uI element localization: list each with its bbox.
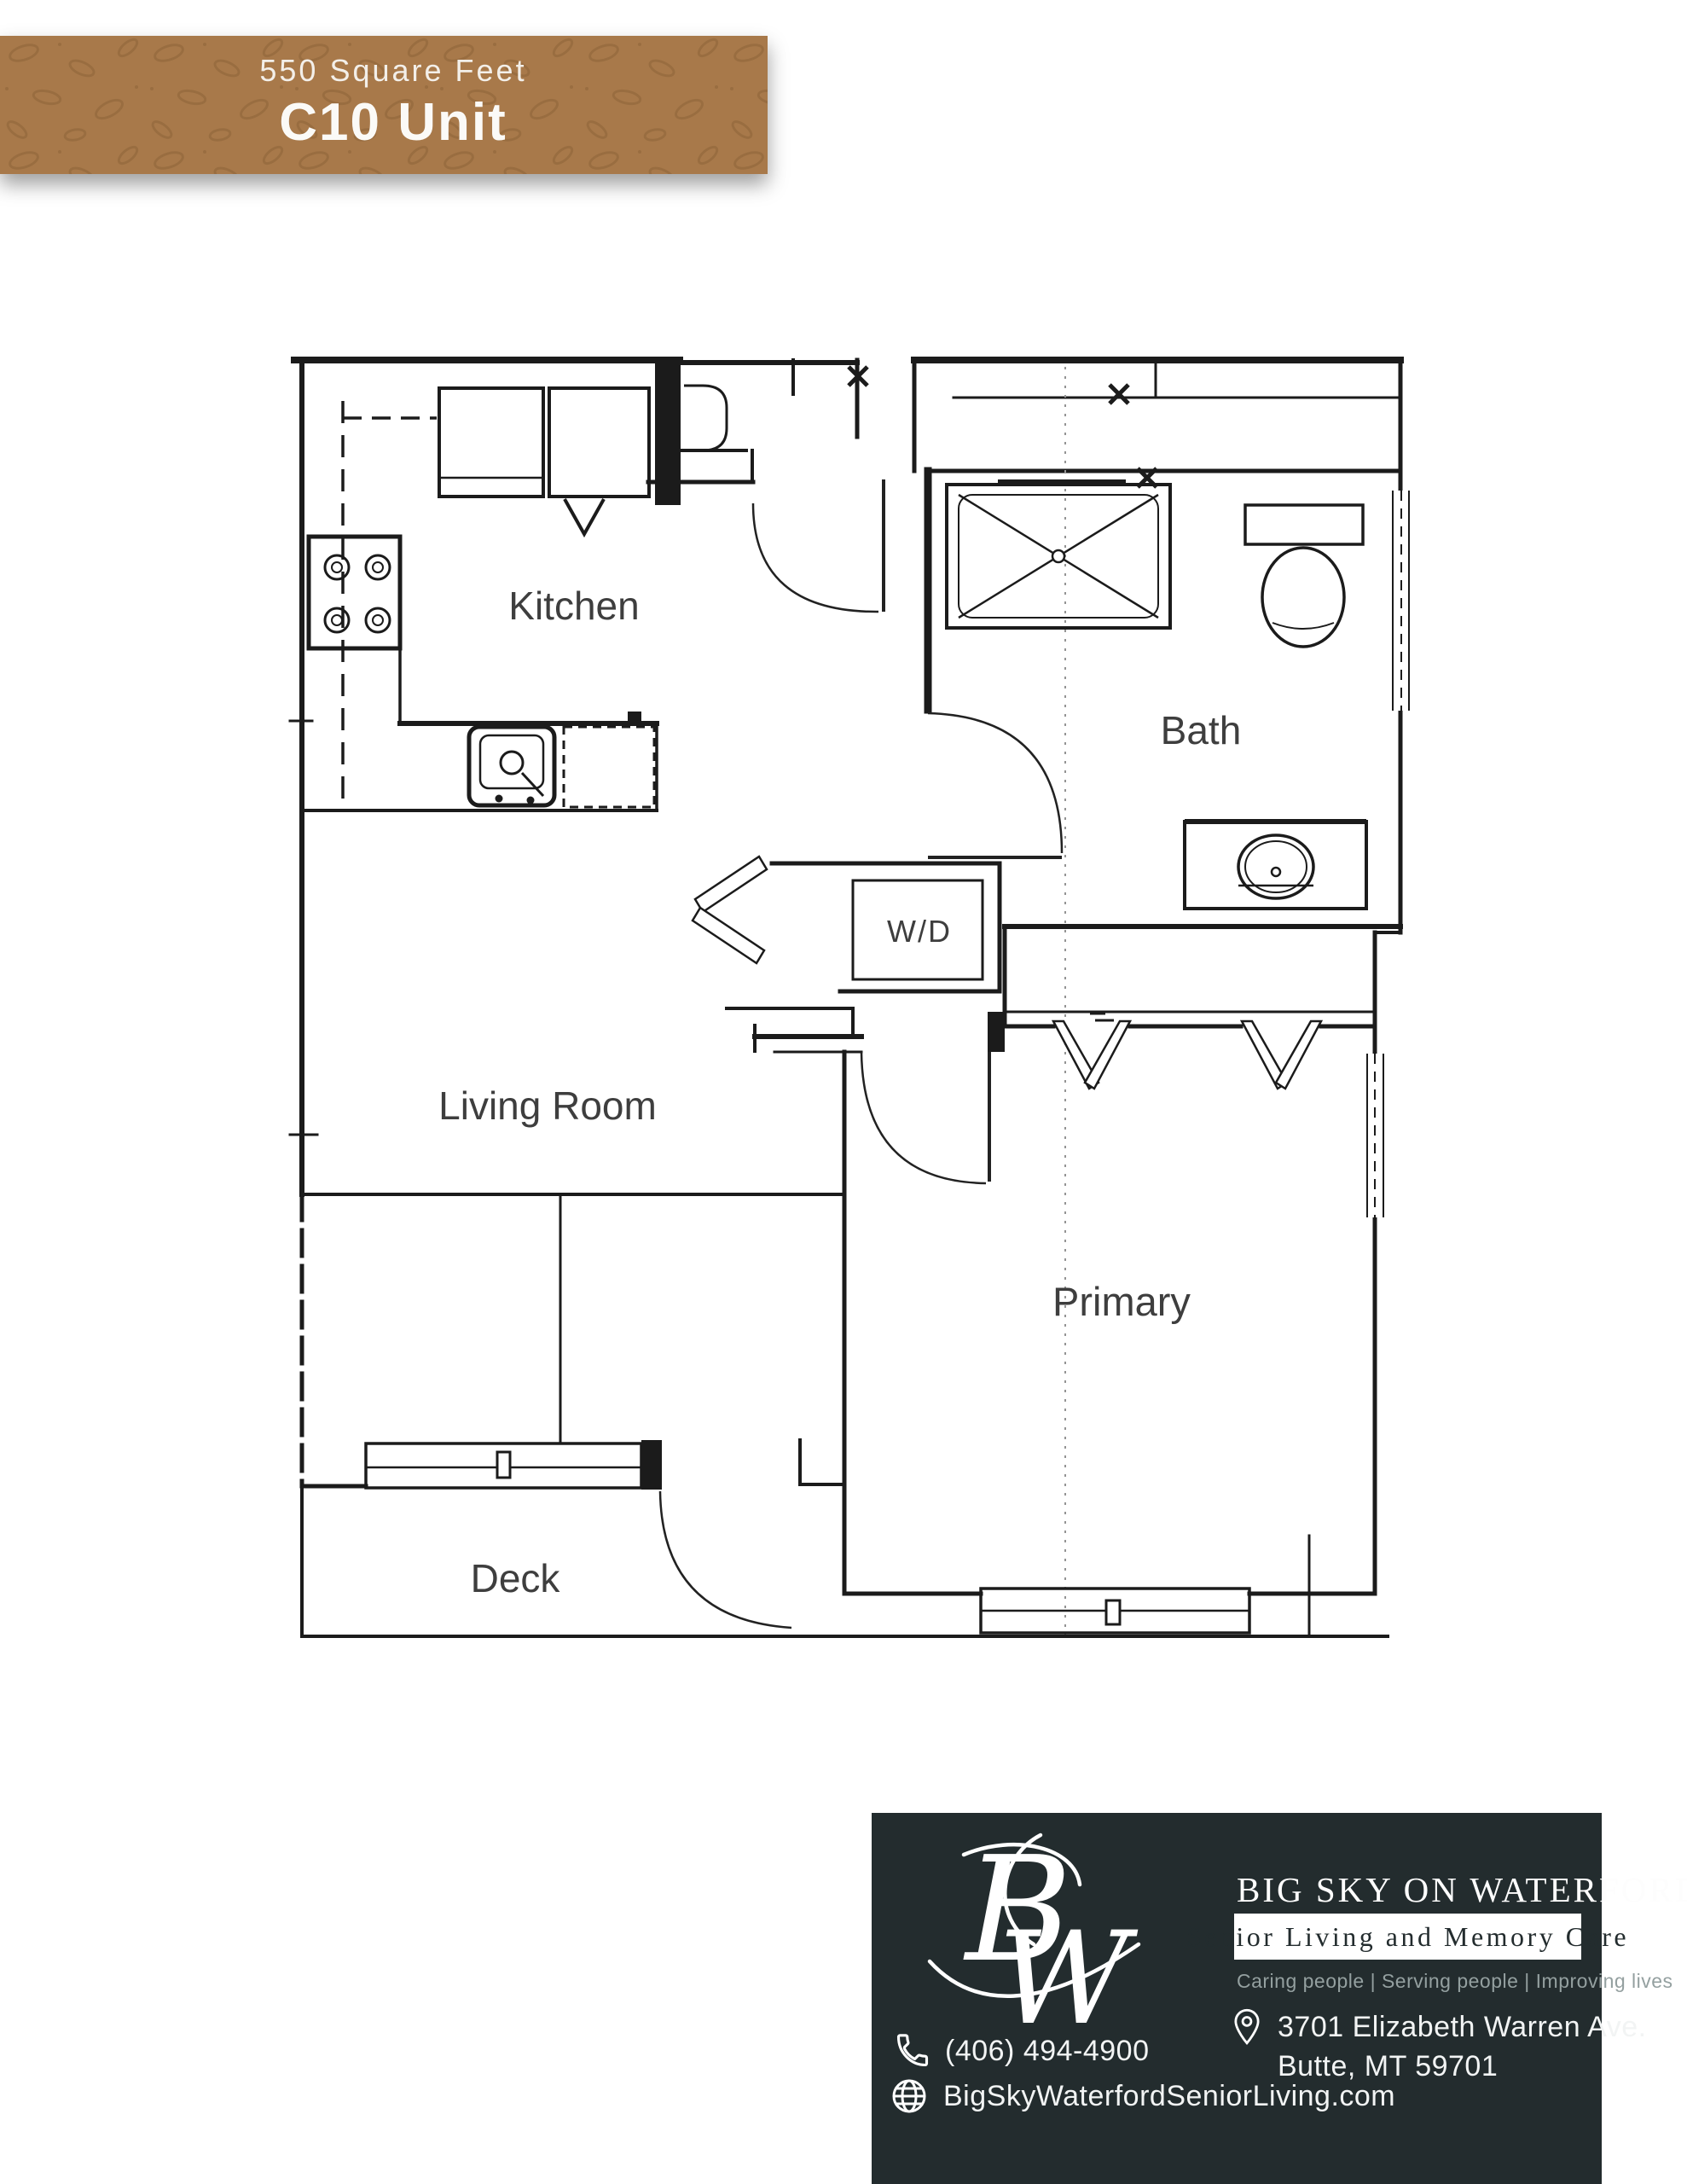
upper-cabinet-dashed-lines xyxy=(343,401,437,810)
location-pin-icon xyxy=(1230,2007,1264,2047)
banner-square-feet: 550 Square Feet xyxy=(19,53,768,89)
globe-icon xyxy=(889,2076,930,2117)
water-heater-symbol xyxy=(684,386,727,450)
monogram-letter-w: W xyxy=(998,1905,1139,2038)
room-label-kitchen: Kitchen xyxy=(508,584,639,628)
footer-phone-row: (406) 494-4900 xyxy=(894,2031,1150,2071)
footer-phone-number[interactable]: (406) 494-4900 xyxy=(945,2031,1150,2071)
window-symbols xyxy=(1361,491,1414,1217)
room-label-living-room: Living Room xyxy=(438,1083,657,1128)
toilet-symbol xyxy=(1245,505,1363,647)
door-swing-arcs xyxy=(660,479,1062,1628)
flyer-page: Kitchen Bath W/D Living Room Primary Dec… xyxy=(0,0,1687,2184)
kitchen-sink-symbol xyxy=(469,727,554,805)
footer-website-row: BigSkyWaterfordSeniorLiving.com xyxy=(889,2076,1395,2117)
room-label-deck: Deck xyxy=(471,1556,561,1600)
phone-icon xyxy=(894,2032,931,2070)
living-window-symbol xyxy=(366,1440,662,1490)
room-label-primary: Primary xyxy=(1052,1279,1191,1324)
fridge-symbol xyxy=(439,388,543,497)
room-label-bath: Bath xyxy=(1161,708,1242,752)
footer-brand-name: BIG SKY ON WATERFORD xyxy=(1237,1869,1598,1910)
room-label-washer-dryer: W/D xyxy=(887,914,952,949)
footer-address-row: 3701 Elizabeth Warren Ave. Butte, MT 597… xyxy=(1230,2007,1647,2086)
footer-subtitle-band: Senior Living and Memory Care xyxy=(1234,1914,1581,1960)
shower-symbol xyxy=(947,483,1170,628)
stove-symbol xyxy=(309,537,400,648)
bw-monogram-logo: B W xyxy=(913,1825,1168,2038)
footer-subtitle: Senior Living and Memory Care xyxy=(1186,1921,1629,1953)
vanity-sink-symbol xyxy=(1185,822,1366,909)
corner-cabinet-symbol xyxy=(549,388,649,534)
banner-unit-name: C10 Unit xyxy=(19,92,768,153)
footer-address-line1: 3701 Elizabeth Warren Ave. xyxy=(1278,2007,1647,2047)
primary-window-symbol xyxy=(981,1589,1249,1633)
footer-website-url[interactable]: BigSkyWaterfordSeniorLiving.com xyxy=(943,2077,1395,2116)
footer-card: B W BIG SKY ON WATERFORD Senior Living a… xyxy=(872,1813,1602,2184)
footer-tagline: Caring people | Serving people | Improvi… xyxy=(1237,1970,1673,1993)
unit-banner: 550 Square Feet C10 Unit xyxy=(0,36,768,174)
